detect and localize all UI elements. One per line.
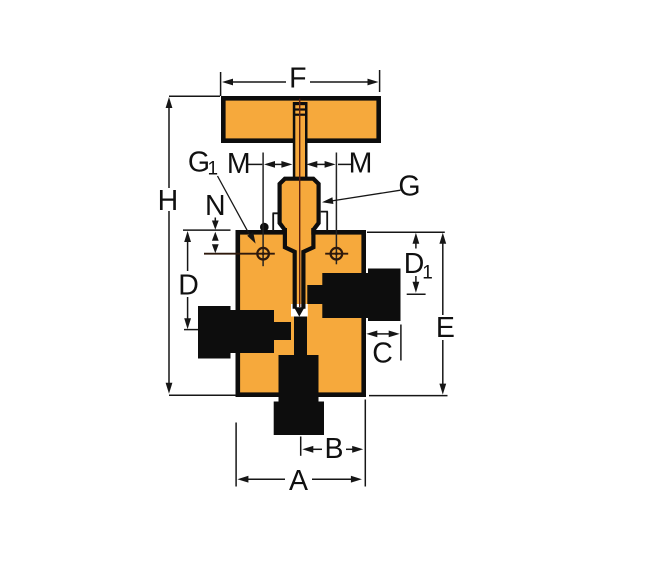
svg-text:1: 1 [208,159,219,180]
svg-text:A: A [289,465,308,497]
svg-text:N: N [205,190,226,222]
svg-text:H: H [158,185,179,217]
svg-text:D: D [404,248,425,280]
svg-text:M: M [227,148,251,180]
svg-text:B: B [324,433,343,465]
svg-text:F: F [289,62,306,94]
svg-text:C: C [372,338,393,370]
svg-text:G: G [398,171,420,203]
svg-text:D: D [178,270,199,302]
svg-text:1: 1 [422,263,433,284]
svg-text:M: M [349,148,373,180]
svg-text:E: E [436,312,455,344]
